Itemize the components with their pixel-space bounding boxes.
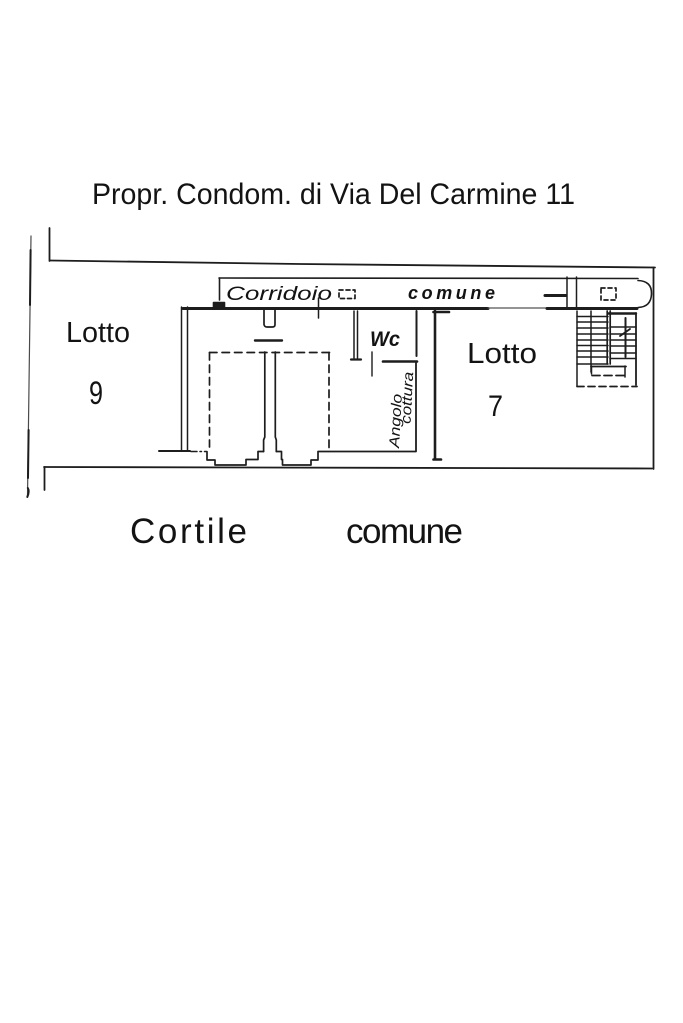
svg-text:Cortile: Cortile bbox=[130, 512, 247, 551]
svg-text:Wc: Wc bbox=[370, 328, 400, 351]
svg-text:comune: comune bbox=[346, 512, 463, 551]
svg-text:Lotto: Lotto bbox=[66, 317, 130, 349]
svg-text:Lotto: Lotto bbox=[467, 338, 537, 370]
svg-text:comune: comune bbox=[408, 283, 495, 303]
svg-text:Corridoio: Corridoio bbox=[226, 284, 332, 305]
svg-text:9: 9 bbox=[89, 375, 103, 411]
svg-text:7: 7 bbox=[488, 390, 503, 423]
svg-text:Propr. Condom. di Via Del Carm: Propr. Condom. di Via Del Carmine 11 bbox=[92, 178, 575, 211]
svg-text:cottura: cottura bbox=[399, 371, 418, 424]
